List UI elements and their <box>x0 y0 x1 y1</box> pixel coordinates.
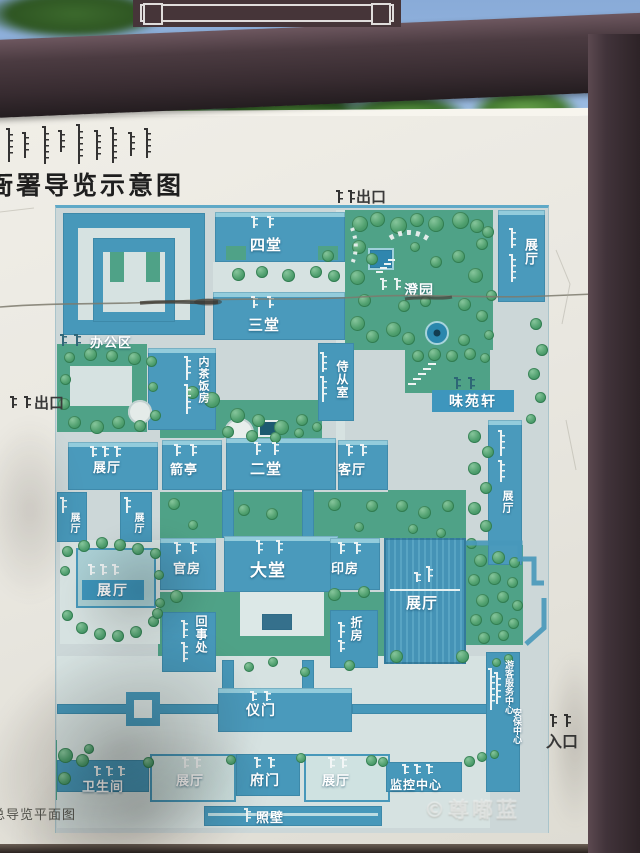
tree <box>60 374 71 385</box>
tree <box>528 368 540 380</box>
tree <box>238 504 250 516</box>
tree <box>150 410 161 421</box>
tree <box>464 756 475 767</box>
tree <box>490 750 499 759</box>
tree <box>480 520 492 532</box>
mongolian-script-mark <box>116 446 118 457</box>
tree <box>410 213 424 227</box>
tree <box>412 350 424 362</box>
label-fuwuzhongxin: 游客服务中心 <box>502 660 515 714</box>
mongolian-script-mark <box>176 542 178 554</box>
tree <box>230 408 245 423</box>
mongolian-script-mark <box>356 542 358 554</box>
tree <box>488 572 501 585</box>
corridor <box>222 490 234 538</box>
tree <box>154 570 164 580</box>
label-zhanting-s2: 展厅 <box>322 770 350 789</box>
tree <box>418 506 431 519</box>
tree <box>456 650 469 663</box>
tree <box>68 416 81 429</box>
wall <box>352 704 490 714</box>
tree <box>344 660 355 671</box>
mongolian-script-mark <box>322 352 324 372</box>
mongolian-script-mark <box>24 132 26 158</box>
tree <box>446 350 458 362</box>
board-bottom-edge <box>0 844 594 853</box>
label-zhanting-w-big: 展厅 <box>82 580 144 600</box>
mongolian-script-mark <box>76 334 78 346</box>
mongolian-script-mark <box>511 228 513 248</box>
tree <box>492 551 505 564</box>
mongolian-script-mark <box>96 766 98 776</box>
tree <box>428 216 444 232</box>
tree <box>128 352 141 365</box>
tree <box>76 754 89 767</box>
tree <box>476 594 489 607</box>
label-yimen: 仪门 <box>246 700 276 720</box>
tree <box>428 348 441 361</box>
mongolian-script-mark <box>428 764 430 774</box>
tree <box>386 322 401 337</box>
tree <box>143 757 154 768</box>
tree <box>358 294 371 307</box>
label-weishengjian: 卫生间 <box>82 776 124 795</box>
tree <box>410 242 420 252</box>
tree <box>468 502 481 515</box>
mongolian-script-mark <box>186 356 188 380</box>
tree <box>370 212 385 227</box>
label-shicongshi: 侍从室 <box>334 360 351 399</box>
tree <box>358 586 370 598</box>
tree <box>328 270 340 282</box>
mongolian-script-mark <box>44 126 46 164</box>
mongolian-script-mark <box>362 444 364 456</box>
tree <box>474 554 487 567</box>
tree <box>480 482 492 494</box>
mongolian-script-mark <box>186 384 188 414</box>
tree <box>497 591 509 603</box>
sign-frame-post <box>588 34 640 853</box>
tree <box>458 334 470 346</box>
label-huishichu: 回事处 <box>193 615 210 654</box>
tree <box>78 540 90 552</box>
tree <box>312 422 322 432</box>
tree <box>366 253 378 265</box>
tree <box>508 618 519 629</box>
tree <box>490 612 503 625</box>
tree <box>492 658 501 667</box>
tree <box>296 414 308 426</box>
tree <box>480 353 490 363</box>
mongolian-script-mark <box>278 540 280 554</box>
mongolian-script-mark <box>496 672 498 704</box>
mongolian-script-mark <box>146 128 148 158</box>
tree <box>512 600 523 611</box>
tree <box>76 622 88 634</box>
mongolian-script-mark <box>340 542 342 554</box>
tree <box>396 500 408 512</box>
mongolian-script-mark <box>511 254 513 282</box>
label-zhanting-w: 展厅 <box>93 457 121 476</box>
label-weiyuanxuan: 味苑轩 <box>432 390 514 412</box>
label-jiankongzhongxin: 监控中心 <box>390 776 442 793</box>
mongolian-script-mark <box>348 444 350 456</box>
mongolian-script-mark <box>416 764 418 774</box>
tree <box>114 539 126 551</box>
tree <box>155 598 165 608</box>
mongolian-script-mark <box>416 572 418 582</box>
mongolian-script-mark <box>26 396 28 408</box>
tree <box>352 216 368 232</box>
mongolian-script-mark <box>269 296 271 308</box>
corridor <box>302 490 314 538</box>
tree <box>134 420 146 432</box>
tree <box>170 590 183 603</box>
well-pavilion-court <box>134 700 152 718</box>
tree <box>350 316 365 331</box>
mongolian-script-mark <box>342 757 344 768</box>
watermark: ©尊嘟蓝 <box>424 794 520 824</box>
label-fumen: 府门 <box>250 770 280 790</box>
label-yinfang: 印房 <box>331 558 359 577</box>
label-guanfang: 官房 <box>173 558 201 577</box>
tree <box>366 755 377 766</box>
mongolian-script-mark <box>490 668 492 710</box>
tree <box>90 420 104 434</box>
mongolian-script-mark <box>183 620 185 638</box>
tree <box>226 755 236 765</box>
mongolian-script-mark <box>8 128 10 162</box>
tree <box>390 217 407 234</box>
tree <box>482 226 494 238</box>
tree <box>466 538 477 549</box>
tree <box>464 348 476 360</box>
tree <box>188 520 198 530</box>
mongolian-script-mark <box>266 691 268 701</box>
mongolian-script-mark <box>176 444 178 456</box>
mongolian-script-mark <box>330 757 332 768</box>
tree <box>222 426 234 438</box>
mongolian-script-mark <box>130 132 132 156</box>
label-zhanting-ne: 展厅 <box>520 238 539 266</box>
mongolian-script-mark <box>456 377 458 389</box>
label-zhanting-w3: 展厅 <box>130 512 145 534</box>
tree <box>58 748 73 763</box>
tree <box>470 614 482 626</box>
zhanting-se-line <box>390 589 460 591</box>
tree <box>477 752 487 762</box>
tree <box>106 350 118 362</box>
tree <box>536 344 548 356</box>
tree <box>408 524 418 534</box>
tree <box>476 310 488 322</box>
tree <box>132 543 144 555</box>
tree <box>498 630 509 641</box>
label-neichafanfang: 内茶饭房 <box>195 356 211 404</box>
mongolian-script-mark <box>102 564 104 575</box>
mongolian-script-mark <box>62 497 64 513</box>
tree <box>476 238 488 250</box>
tree <box>130 626 142 638</box>
exit-left-label: 出口 <box>34 392 64 413</box>
tree <box>152 608 163 619</box>
top-sign-panel <box>133 0 401 27</box>
bangongqu-green <box>110 252 124 282</box>
tree <box>168 498 180 510</box>
tree <box>366 330 379 343</box>
mongolian-script-mark <box>500 430 502 456</box>
tree <box>507 577 518 588</box>
tree <box>468 268 483 283</box>
mongolian-script-mark <box>350 190 352 203</box>
tree <box>282 269 295 282</box>
mongolian-script-mark <box>322 376 324 402</box>
mongolian-script-mark <box>126 497 128 513</box>
mongolian-script-mark <box>246 808 248 822</box>
tree <box>328 588 341 601</box>
mongolian-script-mark <box>404 764 406 774</box>
label-jianting: 箭亭 <box>170 459 198 478</box>
mongolian-script-mark <box>382 278 384 290</box>
mongolian-script-mark <box>340 640 342 652</box>
label-zhaobi: 照壁 <box>256 807 284 826</box>
tree <box>452 212 469 229</box>
sign-title: 衙署导览示意图 <box>0 166 184 202</box>
tree <box>94 628 106 640</box>
mongolian-script-mark <box>396 278 398 290</box>
tree <box>62 546 73 557</box>
tree <box>64 352 75 363</box>
mongolian-script-mark <box>192 444 194 456</box>
tree <box>150 548 161 559</box>
label-bangongqu: 办公区 <box>90 332 132 351</box>
label-datang: 大堂 <box>250 556 286 581</box>
tree <box>486 290 497 301</box>
tree <box>509 557 520 568</box>
tree <box>430 256 442 268</box>
tree <box>294 428 304 438</box>
bangongqu-green <box>146 252 160 282</box>
mongolian-script-mark <box>566 714 568 727</box>
tree <box>148 382 158 392</box>
mongolian-script-mark <box>92 446 94 457</box>
tree <box>442 500 454 512</box>
mongolian-script-mark <box>338 190 340 203</box>
mongolian-script-mark <box>269 216 271 228</box>
mongolian-script-mark <box>96 130 98 160</box>
tree <box>530 318 542 330</box>
tree <box>256 266 268 278</box>
mongolian-script-mark <box>104 446 106 457</box>
mongolian-script-mark <box>114 564 116 575</box>
mongolian-script-mark <box>78 124 80 164</box>
tree <box>60 566 70 576</box>
tree <box>458 298 471 311</box>
building-yimen <box>218 688 352 732</box>
label-zhanting-se: 展厅 <box>406 592 438 613</box>
tree <box>482 446 494 458</box>
mongolian-script-mark <box>192 542 194 554</box>
tree <box>322 250 334 262</box>
mongolian-script-mark <box>258 540 260 554</box>
label-sitang: 四堂 <box>250 234 282 255</box>
tree <box>328 498 341 511</box>
label-santang: 三堂 <box>248 314 280 335</box>
label-zhanting-e: 展厅 <box>499 490 515 514</box>
mongolian-script-mark <box>112 127 114 163</box>
tree <box>535 392 546 403</box>
mongolian-script-mark <box>270 757 272 768</box>
tree <box>266 508 278 520</box>
label-chengyuan: 澄园 <box>404 280 434 300</box>
tree <box>398 300 410 312</box>
tree <box>484 330 494 340</box>
tree <box>378 757 388 767</box>
mongolian-script-mark <box>120 766 122 776</box>
exit-top-label: 出口 <box>356 186 386 207</box>
mongolian-script-mark <box>253 216 255 228</box>
mongolian-script-mark <box>274 442 276 455</box>
entrance-label: 入口 <box>546 728 578 752</box>
tree <box>350 270 365 285</box>
mongolian-script-mark <box>470 377 472 389</box>
tree <box>390 650 403 663</box>
tree <box>452 250 465 263</box>
mongolian-script-mark <box>184 757 186 768</box>
tree <box>436 528 446 538</box>
tree <box>366 500 378 512</box>
mongolian-script-mark <box>252 691 254 701</box>
west-courtyard-path <box>70 366 132 406</box>
mongolian-script-mark <box>196 757 198 768</box>
tree <box>112 630 124 642</box>
mongolian-script-mark <box>552 714 554 727</box>
label-zhanting-w2: 展厅 <box>66 512 81 534</box>
mongolian-script-mark <box>90 564 92 575</box>
mongolian-script-mark <box>183 642 185 662</box>
tree <box>478 632 490 644</box>
tree <box>526 414 536 424</box>
photo-of-guide-sign: 衙署导览示意图 出口 出口 入口 办公区 四堂 三堂 澄园 展厅 内茶饭房 侍从… <box>0 0 640 853</box>
bottom-caption: 总导览平面图 <box>0 804 76 823</box>
fret-corner <box>371 3 391 25</box>
sitang-pad <box>226 246 246 260</box>
tree <box>112 416 125 429</box>
tree <box>62 610 73 621</box>
tree <box>352 240 366 254</box>
tree <box>354 522 364 532</box>
fret-corner <box>143 3 163 25</box>
mongolian-script-mark <box>428 566 430 582</box>
building-zhaobi <box>204 806 382 826</box>
tree <box>96 537 108 549</box>
tree <box>252 414 265 427</box>
label-anbao: 安保中心 <box>510 708 523 744</box>
tree <box>468 574 480 586</box>
tree <box>468 462 481 475</box>
mongolian-script-mark <box>253 296 255 308</box>
mongolian-script-mark <box>256 757 258 768</box>
mongolian-script-mark <box>500 460 502 482</box>
mongolian-script-mark <box>108 766 110 776</box>
tree <box>58 772 71 785</box>
mongolian-script-mark <box>62 334 64 346</box>
label-ertang: 二堂 <box>250 458 282 479</box>
label-zhanting-s1: 展厅 <box>176 770 204 789</box>
tree <box>84 744 94 754</box>
tree <box>468 430 481 443</box>
tree <box>296 753 306 763</box>
datang-steps <box>262 614 292 630</box>
tree <box>244 662 254 672</box>
tree <box>232 268 245 281</box>
tree <box>310 266 322 278</box>
tree <box>300 667 310 677</box>
mongolian-script-mark <box>256 442 258 455</box>
mongolian-script-mark <box>340 622 342 638</box>
tree <box>268 657 278 667</box>
tree <box>402 332 415 345</box>
label-zhefang: 折房 <box>348 616 365 642</box>
zhaobi-line <box>208 813 378 816</box>
mongolian-script-mark <box>12 396 14 408</box>
mongolian-script-mark <box>60 130 62 152</box>
tree <box>146 356 157 367</box>
label-keting: 客厅 <box>338 459 366 478</box>
